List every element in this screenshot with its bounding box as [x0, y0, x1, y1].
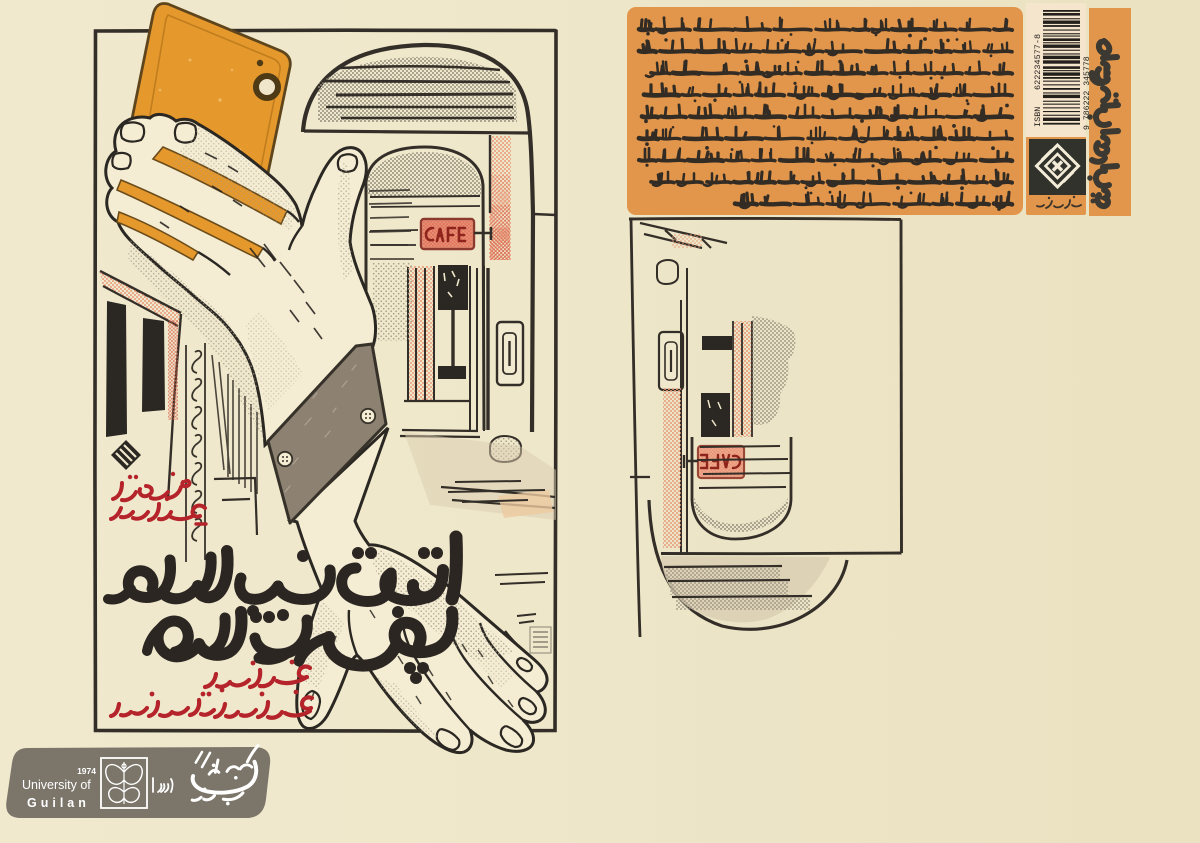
svg-text:Guilan: Guilan	[27, 796, 90, 810]
svg-text:University of: University of	[22, 778, 91, 792]
svg-text:ISBN: ISBN	[1033, 107, 1043, 127]
svg-text:1974: 1974	[77, 766, 96, 776]
svg-text:622234577-8: 622234577-8	[1033, 34, 1043, 90]
